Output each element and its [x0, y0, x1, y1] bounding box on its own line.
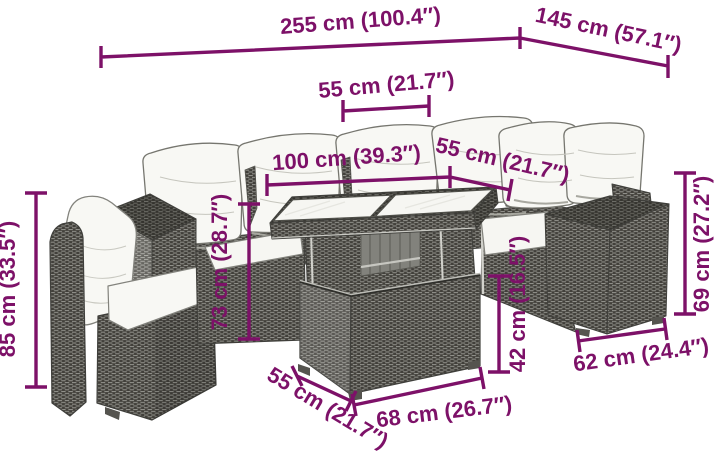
svg-text:255 cm (100.4″): 255 cm (100.4″) — [279, 2, 441, 39]
svg-text:69 cm (27.2″): 69 cm (27.2″) — [689, 176, 714, 313]
svg-text:145 cm (57.1″): 145 cm (57.1″) — [533, 2, 684, 57]
svg-text:55 cm (21.7″): 55 cm (21.7″) — [317, 66, 455, 103]
svg-text:42 cm (16.5″): 42 cm (16.5″) — [505, 236, 530, 373]
svg-text:73 cm (28.7″): 73 cm (28.7″) — [207, 194, 232, 331]
svg-text:85 cm (33.5″): 85 cm (33.5″) — [0, 221, 20, 358]
